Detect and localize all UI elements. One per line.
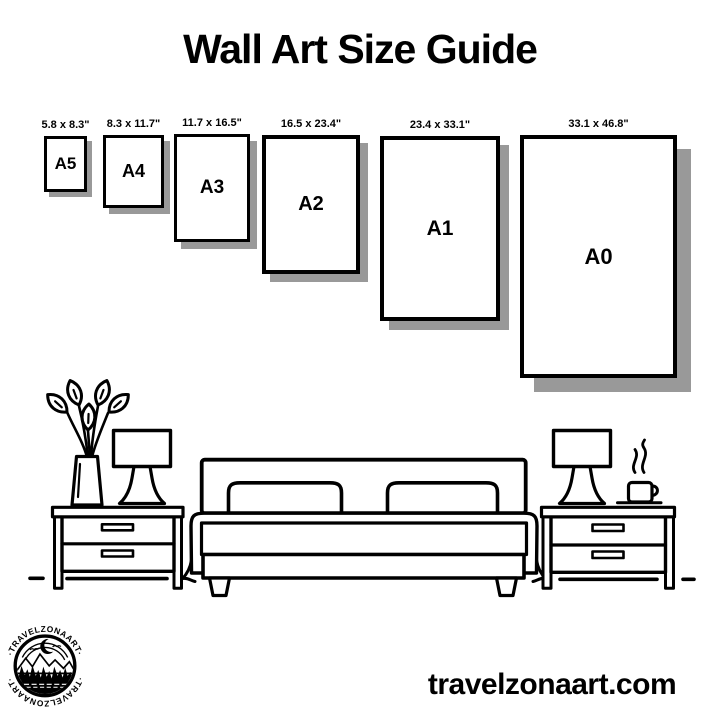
website-url: travelzonaart.com <box>402 668 702 702</box>
steam <box>633 450 636 473</box>
vase <box>72 457 102 506</box>
bed-foot <box>210 578 230 596</box>
table-lamp-left-icon <box>114 431 171 504</box>
nightstand-left-icon <box>53 507 184 588</box>
bedroom-illustration <box>0 0 720 720</box>
cup-body <box>629 483 653 503</box>
pillow <box>388 483 498 513</box>
table-lamp-right-icon <box>554 431 611 504</box>
travelzonaart-logo: ·TRAVELZONAART· ·TRAVELZONAART· <box>3 623 87 707</box>
bed-icon <box>183 460 546 596</box>
sheet <box>202 523 527 555</box>
nightstand-right-icon <box>542 507 675 588</box>
bed-base <box>203 555 524 579</box>
pillow <box>229 483 342 513</box>
coffee-cup-icon <box>618 440 662 503</box>
bed-foot <box>497 578 517 596</box>
steam <box>642 440 645 473</box>
